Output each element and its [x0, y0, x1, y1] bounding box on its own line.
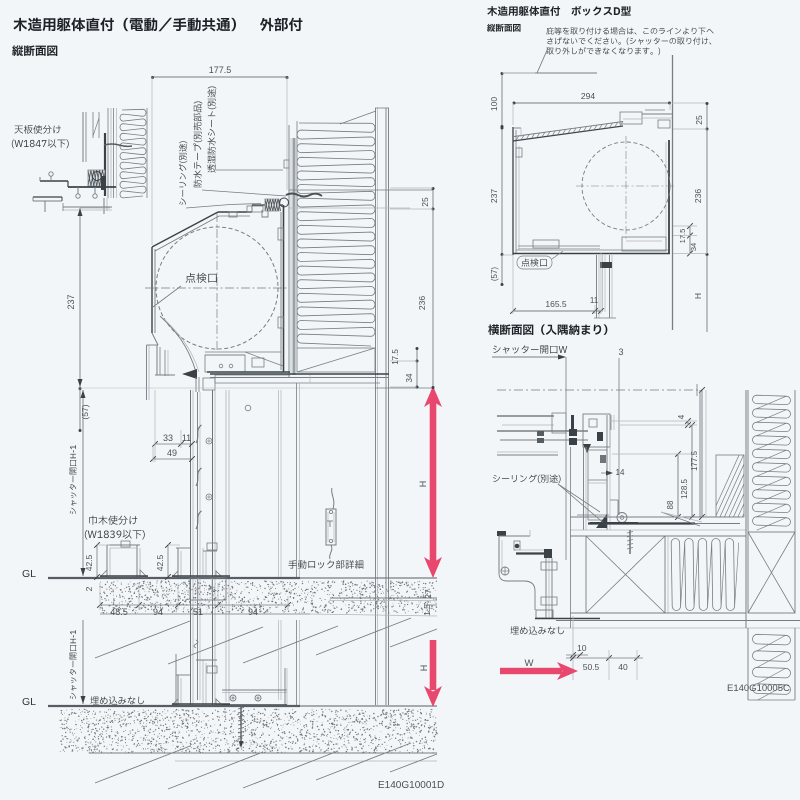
svg-text:177.5: 177.5	[690, 450, 699, 471]
svg-text:49: 49	[167, 448, 177, 458]
svg-text:H: H	[418, 481, 428, 488]
svg-text:E140G10001D: E140G10001D	[378, 780, 444, 791]
svg-text:14: 14	[616, 468, 625, 477]
svg-text:237: 237	[489, 189, 499, 203]
svg-text:27: 27	[423, 589, 433, 599]
svg-text:3: 3	[618, 347, 623, 357]
svg-text:48.5: 48.5	[110, 607, 128, 617]
svg-text:294: 294	[581, 91, 595, 101]
svg-text:128.5: 128.5	[680, 478, 689, 499]
svg-text:GL: GL	[22, 568, 36, 580]
svg-text:10: 10	[577, 643, 587, 653]
svg-text:42.5: 42.5	[84, 554, 94, 571]
svg-text:(57): (57)	[490, 267, 499, 282]
svg-text:237: 237	[66, 294, 76, 309]
svg-text:165.5: 165.5	[545, 299, 567, 309]
svg-text:100: 100	[489, 97, 499, 111]
svg-text:1.5: 1.5	[422, 604, 432, 616]
svg-text:42.5: 42.5	[155, 554, 165, 571]
svg-text:W: W	[525, 658, 534, 669]
svg-text:94: 94	[153, 607, 163, 617]
svg-text:34: 34	[689, 243, 698, 251]
svg-text:51: 51	[193, 607, 203, 617]
svg-text:25: 25	[420, 197, 430, 207]
svg-text:40: 40	[618, 662, 628, 672]
svg-text:E140G10005C: E140G10005C	[727, 683, 790, 694]
svg-text:17.5: 17.5	[391, 349, 400, 365]
svg-text:H: H	[693, 293, 703, 299]
svg-text:(57): (57)	[80, 404, 90, 419]
svg-text:11: 11	[590, 296, 599, 305]
svg-text:177.5: 177.5	[209, 65, 232, 75]
svg-text:50.5: 50.5	[583, 662, 600, 672]
svg-text:2: 2	[84, 586, 94, 591]
svg-text:88: 88	[666, 500, 675, 509]
svg-text:33: 33	[163, 433, 173, 443]
svg-text:94: 94	[248, 607, 258, 617]
svg-text:34: 34	[405, 373, 414, 382]
svg-text:25: 25	[694, 115, 704, 125]
svg-text:236: 236	[693, 189, 703, 203]
svg-text:GL: GL	[22, 696, 36, 708]
svg-text:17.5: 17.5	[678, 229, 687, 244]
svg-text:11: 11	[182, 433, 191, 443]
svg-text:4: 4	[677, 414, 686, 419]
svg-text:H: H	[419, 665, 429, 672]
svg-text:236: 236	[417, 296, 427, 310]
